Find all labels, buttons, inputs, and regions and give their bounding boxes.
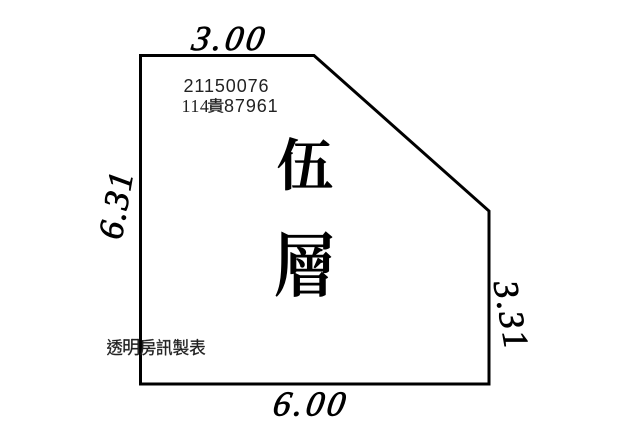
svg-text:3.31: 3.31 [486, 276, 537, 353]
svg-text:21150076: 21150076 [184, 76, 270, 96]
svg-text:6.31: 6.31 [91, 167, 141, 242]
svg-text:3.00: 3.00 [188, 19, 271, 58]
svg-text:6.00: 6.00 [270, 385, 352, 424]
svg-text:114: 114 [182, 96, 210, 116]
svg-text:87961: 87961 [224, 96, 279, 116]
